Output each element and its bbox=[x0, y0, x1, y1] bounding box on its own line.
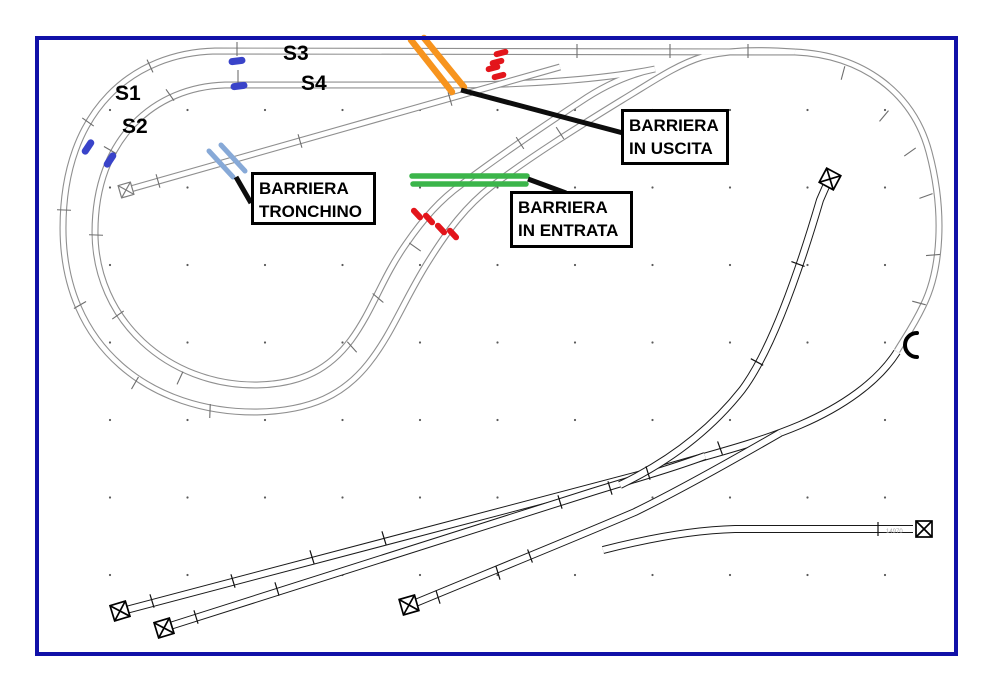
grid-dot bbox=[729, 264, 731, 266]
grid-dot bbox=[419, 341, 421, 343]
grid-dot bbox=[651, 264, 653, 266]
grid-dot bbox=[651, 574, 653, 576]
grid-dot bbox=[574, 341, 576, 343]
grid-dot bbox=[109, 496, 111, 498]
grid-dot bbox=[109, 186, 111, 188]
grid-dot bbox=[419, 496, 421, 498]
callout-text: BARRIERA bbox=[629, 114, 721, 137]
grid-dot bbox=[109, 341, 111, 343]
grid-dot bbox=[186, 341, 188, 343]
grid-dot bbox=[264, 264, 266, 266]
grid-dot bbox=[884, 496, 886, 498]
grid-dot bbox=[186, 109, 188, 111]
grid-dot bbox=[729, 496, 731, 498]
callout-box-tronchino: BARRIERA TRONCHINO bbox=[251, 172, 376, 225]
grid-dot bbox=[341, 109, 343, 111]
callout-text: TRONCHINO bbox=[259, 200, 368, 223]
tronchino-buffer-stop bbox=[118, 182, 134, 198]
grid-dot bbox=[806, 186, 808, 188]
grid-dot bbox=[574, 264, 576, 266]
grid-dot bbox=[651, 341, 653, 343]
track-plan-canvas: 14970 S1 S2 S3 S4 BARRIERA TRONCHINO BAR… bbox=[0, 0, 991, 692]
grid-dot bbox=[419, 574, 421, 576]
signal-label-s3: S3 bbox=[283, 43, 309, 64]
grid-dot bbox=[109, 264, 111, 266]
grid-dot bbox=[651, 419, 653, 421]
grid-dot bbox=[884, 264, 886, 266]
callout-text: IN ENTRATA bbox=[518, 219, 625, 242]
grid-dot bbox=[884, 419, 886, 421]
grid-dot bbox=[574, 574, 576, 576]
grid-dot bbox=[109, 419, 111, 421]
grid-dot bbox=[109, 574, 111, 576]
buffer-stop bbox=[154, 618, 174, 638]
buffer-stop bbox=[916, 521, 932, 537]
grid-dot bbox=[496, 419, 498, 421]
grid-dot bbox=[729, 574, 731, 576]
callout-box-entrata: BARRIERA IN ENTRATA bbox=[510, 191, 633, 248]
grid-dot bbox=[729, 186, 731, 188]
grid-dot bbox=[341, 264, 343, 266]
grid-dot bbox=[186, 574, 188, 576]
grid-dot bbox=[264, 496, 266, 498]
callout-text: BARRIERA bbox=[518, 196, 625, 219]
grid-dot bbox=[806, 574, 808, 576]
grid-dot bbox=[341, 419, 343, 421]
grid-dot bbox=[806, 264, 808, 266]
grid-dot bbox=[574, 419, 576, 421]
grid-dot bbox=[264, 419, 266, 421]
grid-dot bbox=[186, 186, 188, 188]
grid-dot bbox=[109, 109, 111, 111]
buffer-stop bbox=[110, 601, 130, 621]
grid-dot bbox=[186, 419, 188, 421]
callout-text: IN USCITA bbox=[629, 137, 721, 160]
grid-dot bbox=[806, 496, 808, 498]
grid-dot bbox=[496, 264, 498, 266]
signal-label-s4: S4 bbox=[301, 73, 327, 94]
grid-dot bbox=[806, 341, 808, 343]
grid-dot bbox=[419, 264, 421, 266]
grid-dot bbox=[496, 496, 498, 498]
callout-text: BARRIERA bbox=[259, 177, 368, 200]
grid-dot bbox=[264, 109, 266, 111]
grid-dot bbox=[651, 186, 653, 188]
grid-dot bbox=[884, 574, 886, 576]
grid-dot bbox=[574, 186, 576, 188]
grid-dot bbox=[419, 419, 421, 421]
grid-dot bbox=[186, 264, 188, 266]
grid-dot bbox=[729, 109, 731, 111]
grid-dot bbox=[264, 341, 266, 343]
grid-dot bbox=[729, 419, 731, 421]
grid-dot bbox=[496, 109, 498, 111]
grid-dot bbox=[341, 496, 343, 498]
grid-dot bbox=[884, 109, 886, 111]
track-part-number: 14970 bbox=[886, 529, 903, 535]
track-plan-drawing: 14970 bbox=[0, 0, 991, 692]
grid-dot bbox=[341, 341, 343, 343]
callout-box-uscita: BARRIERA IN USCITA bbox=[621, 109, 729, 165]
grid-dot bbox=[496, 341, 498, 343]
grid-dot bbox=[729, 341, 731, 343]
grid-dot bbox=[884, 341, 886, 343]
signal-label-s2: S2 bbox=[122, 116, 148, 137]
signal-label-s1: S1 bbox=[115, 83, 141, 104]
grid-dot bbox=[806, 109, 808, 111]
grid-dot bbox=[651, 496, 653, 498]
buffer-stop bbox=[399, 595, 419, 615]
grid-dot bbox=[186, 496, 188, 498]
grid-dot bbox=[884, 186, 886, 188]
